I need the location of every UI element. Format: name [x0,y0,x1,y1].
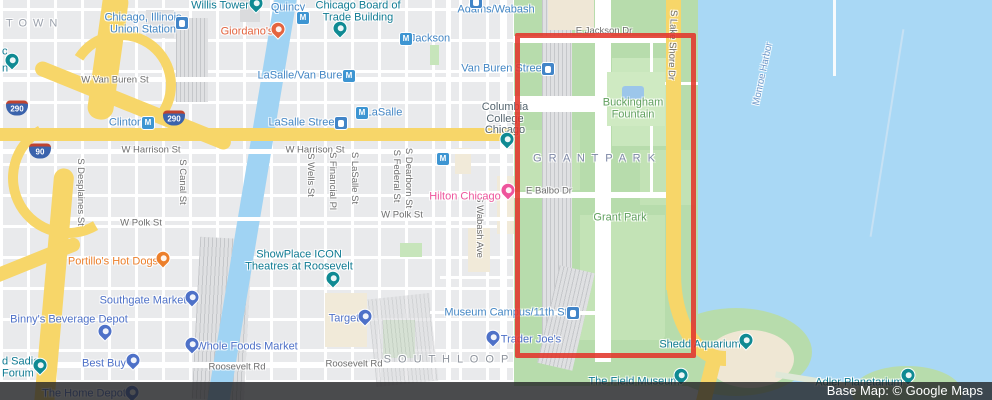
interstate-290-shield: 290 [6,101,28,116]
interstate-90-shield: 90 [29,144,51,159]
highlight-rectangle [515,33,696,358]
interstate-290-shield: 290 [163,111,185,126]
attribution-text: Base Map: © Google Maps [827,383,983,398]
attribution-bar: Base Map: © Google Maps [0,382,992,400]
map-viewport[interactable]: KTOWNChicago, Illinois Union StationWill… [0,0,992,400]
highway-shields-layer: 29029090 [0,0,992,400]
